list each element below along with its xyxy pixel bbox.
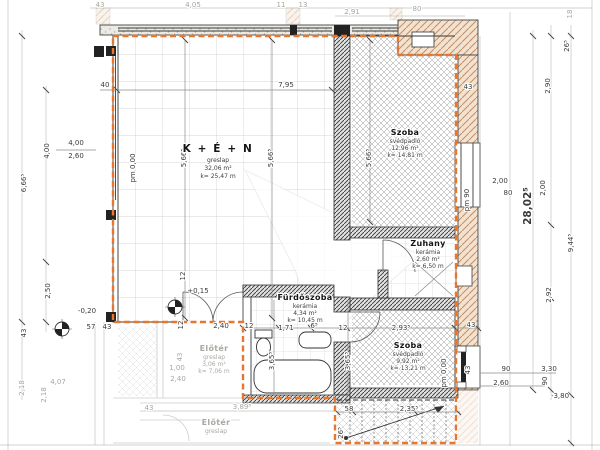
dimension-label: 2,60: [68, 152, 84, 160]
room-floor: svédpadló: [390, 138, 421, 145]
dimension-label: 12: [179, 272, 187, 281]
room-perimeter: k= 6,50 m: [412, 263, 444, 270]
bathtub: [254, 360, 331, 393]
room-floor: greslap: [203, 354, 225, 361]
column: [106, 210, 116, 220]
column: [106, 312, 116, 322]
toilet-tank: [255, 330, 272, 338]
dimension-label: 2,35⁵: [400, 405, 419, 413]
dimension-label: 4,07: [50, 378, 66, 386]
wall-cap: [334, 25, 350, 36]
dimension-label: 2,00: [492, 177, 508, 185]
dimension-label: 12: [339, 324, 348, 332]
dimension-label: 43: [20, 329, 28, 338]
room-name: K + É + N: [183, 142, 254, 155]
room-name: Szoba: [394, 341, 423, 350]
dimension-label: 9,44⁵: [567, 234, 575, 253]
dimension-label: -3,80: [551, 392, 569, 400]
dimension-label: -0,20: [78, 307, 96, 315]
stairs: [337, 400, 457, 443]
dimension-label: 6,66⁵: [20, 174, 28, 193]
dimension-label: 43: [176, 353, 184, 362]
room-name: Előtér: [200, 343, 229, 353]
column: [106, 46, 116, 56]
dimension-label: 57: [87, 323, 96, 331]
elevation-marker: [52, 319, 72, 339]
dimension-label: 2,91: [344, 8, 360, 16]
room-name: Zuhany: [410, 239, 446, 248]
floor-plan-page: 434,0511132,91801826⁵432,90407,955,66⁵5,…: [0, 0, 600, 450]
dimension-label: 80: [413, 5, 422, 13]
dimension-label: 13: [299, 1, 308, 9]
room-area: 9,92 m²: [396, 358, 420, 365]
dimension-label: 2,90: [544, 78, 552, 94]
overall-dimension-highlight: 28,02⁵: [522, 187, 534, 225]
room-area: 32,06 m²: [204, 165, 232, 172]
room-floor: greslap: [205, 428, 227, 435]
dimension-label: 2,50: [44, 283, 52, 299]
room-perimeter: k= 7,06 m: [198, 368, 230, 375]
dimension-label: 3,65⁵: [268, 352, 276, 371]
dimension-label: 26⁵: [563, 40, 571, 52]
room-floor: svédpadló: [393, 351, 424, 358]
shower-top-wall: [350, 227, 455, 238]
dimension-label: 90: [541, 377, 549, 386]
room-area: 4,34 m²: [293, 310, 317, 317]
dimension-label: 43: [145, 404, 154, 412]
room-perimeter: k= 25,47 m: [200, 173, 235, 180]
dimension-label: 5,66⁵: [365, 149, 373, 168]
dimension-label: 43: [96, 1, 105, 9]
faint-door-arc: [163, 415, 189, 441]
room-area: 3,06 m²: [202, 361, 226, 368]
dimension-label: 43: [464, 366, 472, 375]
interior-wall-main: [334, 36, 350, 240]
dimension-label: 43: [103, 323, 112, 331]
dimension-label: 1,00: [169, 364, 185, 372]
corner-block-window: [412, 32, 434, 47]
dimension-label: 43: [464, 83, 473, 91]
dimension-label: pm 0,00: [440, 358, 448, 387]
right-wall: [458, 55, 478, 390]
room-floor: kerámia: [293, 303, 318, 310]
dimension-label: 40: [101, 81, 110, 89]
dimension-label: pm 0,00: [129, 153, 137, 182]
dimension-label: 43: [467, 321, 476, 329]
dimension-label: 3,65⁵: [344, 352, 352, 371]
room-perimeter: k= 14,81 m: [387, 152, 422, 159]
dimension-label: 3,30: [541, 365, 557, 373]
dimension-label: 4,05: [185, 1, 201, 9]
top-wall-mullion: [290, 25, 297, 35]
top-wall: [100, 25, 400, 35]
dimension-label: 4,00: [43, 143, 51, 159]
sink: [299, 332, 331, 348]
dimension-label: 18: [566, 10, 574, 19]
column: [94, 46, 104, 57]
room-floor: greslap: [207, 157, 229, 164]
room-perimeter: k= 13,21 m: [390, 365, 425, 372]
shower-bottom-wall: [350, 298, 455, 310]
dimension-label: 7,95: [278, 81, 294, 89]
dimension-label: 2,18: [18, 380, 26, 396]
dimension-label: 80: [504, 189, 513, 197]
foyer-floor: [118, 326, 157, 396]
right-wall-niche: [456, 266, 472, 286]
dimension-label: +0,15: [187, 287, 208, 295]
dimension-label: 12: [245, 322, 254, 330]
room-floor: kerámia: [416, 249, 441, 256]
room-name: Szoba: [391, 128, 420, 137]
door-hinge: [457, 382, 466, 388]
dimension-label: 12: [177, 321, 185, 330]
dimension-label: pm 90: [463, 189, 471, 211]
dimension-label: 3,89⁵: [233, 403, 252, 411]
corner-block: [398, 20, 478, 55]
bedroom-bottom-wall: [350, 388, 458, 398]
dimension-label: 2,40: [170, 375, 186, 383]
floor-plan-canvas: 434,0511132,91801826⁵432,90407,955,66⁵5,…: [0, 0, 600, 450]
dimension-label: 2,60: [493, 379, 509, 387]
dimension-label: 2,93⁵: [392, 324, 411, 332]
room-area: 12,96 m²: [391, 145, 419, 152]
room-name: Előtér: [202, 417, 231, 427]
dimension-label: 58: [345, 405, 354, 413]
room-area: 2,60 m²: [416, 256, 440, 263]
dimension-label: 5,66⁵: [267, 149, 275, 168]
door-hinge: [457, 346, 466, 352]
dimension-label: 4,00: [68, 139, 84, 147]
dimension-label: 26⁵: [337, 427, 345, 439]
dimension-label: 1,71: [278, 324, 294, 332]
dimension-label: 2,00: [539, 180, 547, 196]
dimension-label: 11: [277, 1, 286, 9]
dimension-label: 2,40: [213, 322, 229, 330]
room-name: Fürdőszoba: [278, 293, 333, 302]
bathroom-right-wall-upper: [334, 297, 350, 312]
dimension-label: 2,92: [545, 287, 553, 303]
dimension-label: 90: [502, 365, 511, 373]
dimension-label: 2,18: [40, 387, 48, 403]
room-perimeter: k= 10,45 m: [287, 317, 322, 324]
shower-left-wall: [378, 270, 388, 298]
